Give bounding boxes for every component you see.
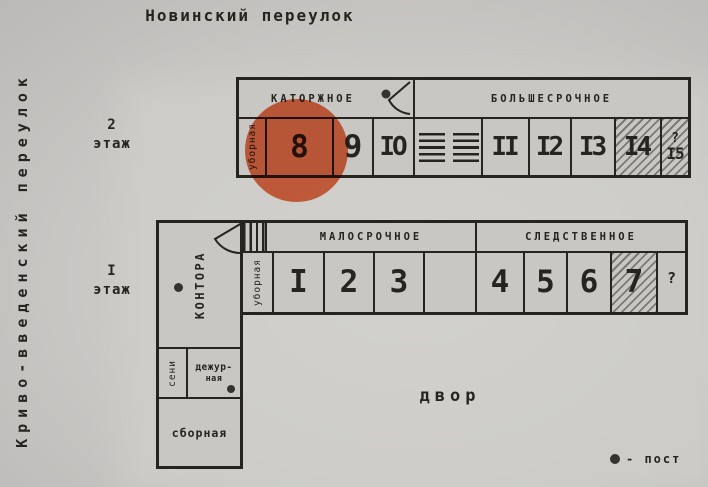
office-label: КОНТОРА [193, 251, 207, 319]
room-10: IO [374, 119, 415, 175]
entry-label: сени [167, 360, 178, 387]
unknown-room-question: ? [667, 270, 676, 287]
floor2-label: 2 этаж [72, 116, 152, 154]
room-entry: сени [159, 349, 188, 397]
room-10-number: IO [379, 134, 404, 160]
floor1-building: МАЛОСРОЧНОЕ СЛЕДСТВЕННОЕ уборная I 2 3 4 [240, 220, 688, 315]
post-dot-icon [174, 283, 183, 292]
floor1-label-number: I [72, 262, 152, 281]
room-duty: дежур- ная [188, 349, 240, 397]
floor1-cells-row: уборная I 2 3 4 5 6 7 [243, 253, 685, 312]
courtyard-label: двор [400, 386, 500, 406]
assembly-label: сборная [172, 426, 227, 440]
duty-label-line1: дежур- [195, 362, 232, 374]
legend: - пост [610, 452, 681, 466]
section-malosrochnoe-label: МАЛОСРОЧНОЕ [320, 231, 423, 243]
stairs-icon [243, 223, 267, 251]
room-2-number: 2 [340, 267, 359, 298]
room-assembly: сборная [159, 399, 240, 466]
floor2-label-number: 2 [72, 116, 152, 135]
room-15-number: I5 [666, 146, 683, 162]
section-malosrochnoe: МАЛОСРОЧНОЕ [267, 223, 477, 251]
room-3: 3 [375, 253, 425, 312]
room-15: ? I5 [662, 119, 688, 175]
duty-label-line2: ная [206, 374, 223, 385]
room-14: I4 [616, 119, 662, 175]
room-2: 2 [325, 253, 375, 312]
door-arc-icon [213, 221, 244, 255]
room-11-number: II [491, 134, 516, 160]
section-sledstvennoe: СЛЕДСТВЕННОЕ [477, 223, 685, 251]
door-arc-icon [378, 81, 412, 115]
room-13: I3 [572, 119, 616, 175]
legend-label: - пост [626, 452, 681, 466]
room-toilet-floor1: уборная [243, 253, 274, 312]
room-4-number: 4 [491, 267, 510, 298]
toilet-label-floor1: уборная [252, 259, 263, 306]
stairs-flight-right [453, 133, 479, 164]
floor1-wing-midrow: сени дежур- ная [159, 349, 240, 399]
section-bolshesrochnoe-label: БОЛЬШЕСРОЧНОЕ [491, 93, 612, 105]
room-6-number: 6 [580, 267, 599, 298]
post-dot-icon [610, 454, 620, 464]
floor1-label: I этаж [72, 262, 152, 300]
floor1-label-word: этаж [72, 281, 152, 300]
room-1-number: I [289, 267, 308, 298]
stairs-icon [415, 119, 483, 175]
room-5: 5 [525, 253, 568, 312]
floor2-label-word: этаж [72, 135, 152, 154]
floor-plan-page: Новинский переулок Криво-введенский пере… [0, 0, 708, 487]
floor1-left-wing: КОНТОРА сени дежур- ная сборная [156, 220, 243, 469]
room-3-number: 3 [390, 267, 409, 298]
room-7: 7 [612, 253, 658, 312]
room-13-number: I3 [579, 134, 604, 160]
stairs-flight-left [419, 133, 445, 164]
room-7-number: 7 [625, 267, 644, 298]
room-12-number: I2 [536, 134, 561, 160]
room-1: I [274, 253, 325, 312]
room-12: I2 [530, 119, 572, 175]
room-11: II [483, 119, 530, 175]
post-dot-icon [227, 385, 235, 393]
section-bolshesrochnoe: БОЛЬШЕСРОЧНОЕ [415, 80, 688, 117]
corridor-space [425, 253, 477, 312]
room-14-number: I4 [624, 134, 649, 160]
highlight-circle [245, 99, 348, 202]
street-label-left: Криво-введенский переулок [13, 60, 31, 460]
street-label-top: Новинский переулок [130, 6, 370, 25]
floor1-header: МАЛОСРОЧНОЕ СЛЕДСТВЕННОЕ [243, 223, 685, 253]
post-dot-icon [382, 90, 391, 99]
section-sledstvennoe-label: СЛЕДСТВЕННОЕ [525, 231, 637, 243]
room-5-number: 5 [536, 267, 555, 298]
room-6: 6 [568, 253, 612, 312]
room-4: 4 [477, 253, 525, 312]
unknown-room: ? [658, 253, 685, 312]
